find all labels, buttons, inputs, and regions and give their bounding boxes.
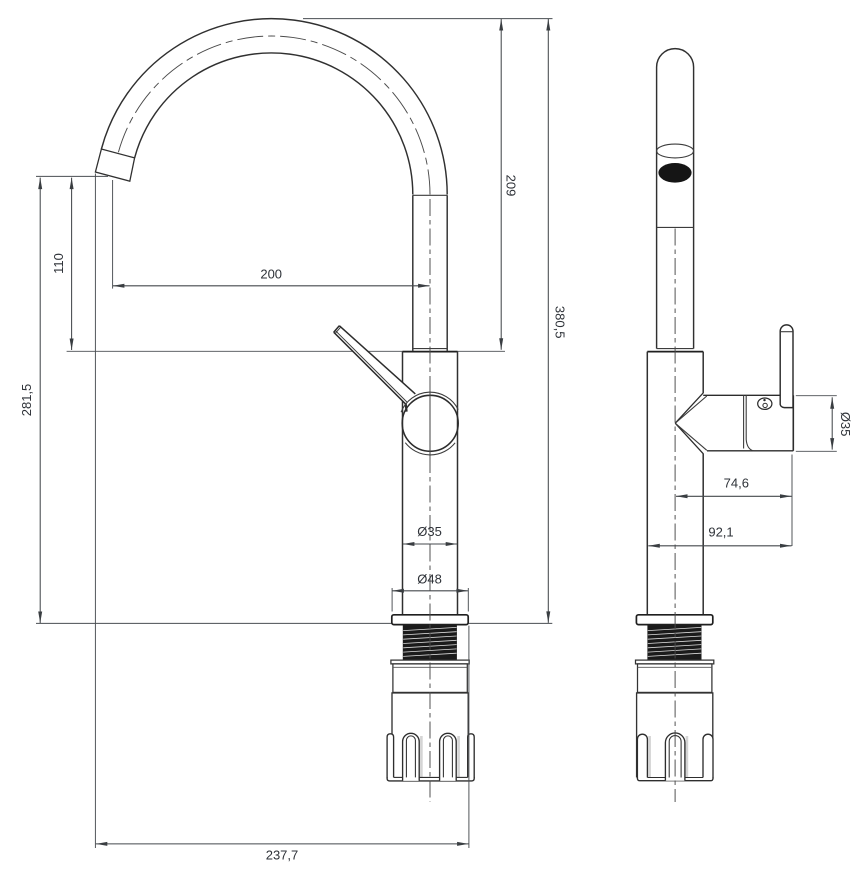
svg-text:237,7: 237,7 bbox=[266, 848, 299, 863]
svg-text:Ø35: Ø35 bbox=[838, 412, 853, 437]
svg-text:Ø35: Ø35 bbox=[417, 524, 442, 539]
svg-text:281,5: 281,5 bbox=[19, 384, 34, 417]
svg-text:92,1: 92,1 bbox=[708, 525, 733, 540]
svg-text:209: 209 bbox=[504, 175, 519, 197]
svg-text:Ø48: Ø48 bbox=[417, 572, 442, 587]
svg-text:74,6: 74,6 bbox=[724, 475, 749, 490]
svg-text:380,5: 380,5 bbox=[553, 306, 568, 339]
svg-text:110: 110 bbox=[51, 253, 66, 274]
svg-text:200: 200 bbox=[260, 267, 282, 282]
